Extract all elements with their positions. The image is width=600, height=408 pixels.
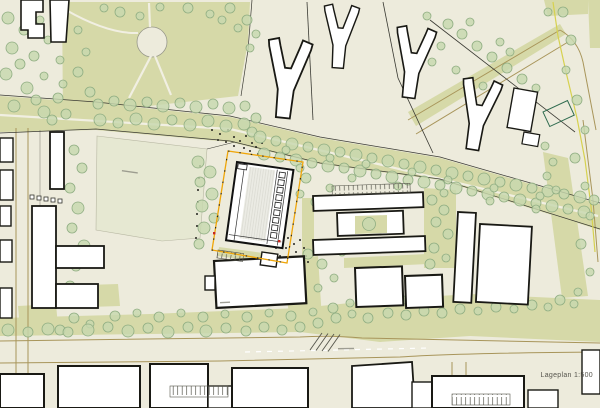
- tree: [65, 183, 75, 193]
- tree: [2, 324, 14, 336]
- main-building: [226, 162, 293, 248]
- bldg-left-d: [0, 240, 12, 262]
- tree: [271, 136, 281, 146]
- tree: [100, 4, 108, 12]
- tree: [348, 310, 356, 318]
- bldg-bottom-f: [528, 390, 558, 408]
- tree: [259, 322, 269, 332]
- entry-block: [238, 164, 248, 170]
- sports-field-layer: [96, 136, 207, 241]
- tree: [242, 15, 252, 25]
- tree: [544, 303, 552, 311]
- sports-field: [96, 136, 207, 241]
- court-bar-south: [313, 236, 425, 255]
- gravel-dot: [211, 129, 213, 131]
- tree: [240, 101, 250, 111]
- gravel-dot: [233, 136, 235, 138]
- tree: [246, 44, 254, 52]
- tree: [486, 197, 494, 205]
- bldg-bottom-c: [232, 368, 308, 408]
- tree: [130, 113, 142, 125]
- tree: [258, 148, 270, 160]
- tree: [167, 115, 177, 125]
- tree: [110, 311, 120, 321]
- gravel-dot: [303, 247, 305, 249]
- tree: [350, 149, 362, 161]
- tree: [313, 318, 323, 328]
- tree: [286, 311, 296, 321]
- tree: [15, 59, 25, 69]
- red-mark: [213, 232, 215, 234]
- tree: [234, 24, 242, 32]
- parking-row-bottom-center: [170, 386, 228, 397]
- tree: [536, 192, 544, 200]
- tree: [77, 163, 87, 173]
- gravel-dot: [249, 150, 251, 152]
- tree: [532, 205, 540, 213]
- tree: [69, 313, 79, 323]
- tree: [190, 101, 202, 113]
- bldg-east-block: [476, 224, 532, 305]
- tree: [63, 327, 73, 337]
- tree: [558, 7, 568, 17]
- tree: [23, 327, 33, 337]
- tree: [69, 145, 79, 155]
- park-circle-plaza: [137, 27, 167, 57]
- room-cell: [279, 172, 286, 178]
- gravel-dot: [195, 237, 197, 239]
- tree: [559, 189, 569, 199]
- tree: [363, 218, 376, 231]
- tree: [576, 239, 586, 249]
- tree: [563, 204, 573, 214]
- tree: [177, 309, 185, 317]
- tree: [499, 192, 509, 202]
- tree: [479, 82, 487, 90]
- tree: [192, 156, 204, 168]
- room-cell: [271, 225, 278, 231]
- tree: [242, 312, 252, 322]
- tree: [566, 35, 576, 45]
- tree: [277, 325, 287, 335]
- tree: [220, 120, 232, 132]
- tree: [467, 186, 477, 196]
- tree: [450, 182, 462, 194]
- tree: [301, 173, 311, 183]
- tree: [418, 176, 430, 188]
- plan-scale-label: Lageplan 1:500: [541, 372, 593, 380]
- tree: [29, 51, 39, 61]
- bldg-left-c: [0, 206, 11, 226]
- tree: [543, 172, 551, 180]
- lageplan-drawing: [0, 0, 600, 408]
- room-cell: [270, 232, 277, 238]
- tree: [53, 93, 63, 103]
- tree: [427, 195, 437, 205]
- tree: [382, 155, 394, 167]
- tree: [517, 74, 527, 84]
- tree: [6, 42, 18, 54]
- tree: [514, 194, 526, 206]
- tree: [143, 323, 153, 333]
- tree: [589, 195, 599, 205]
- tree: [133, 309, 141, 317]
- tree: [328, 303, 338, 313]
- tree: [241, 326, 251, 336]
- tree: [136, 12, 144, 20]
- tree: [443, 19, 453, 29]
- tree: [541, 142, 549, 150]
- tree: [196, 200, 208, 212]
- tree: [442, 254, 450, 262]
- tree: [42, 323, 54, 335]
- room-cell: [273, 210, 280, 216]
- tree: [339, 163, 349, 173]
- tree: [331, 313, 341, 323]
- street-label-mark: [338, 348, 354, 350]
- gravel-dot: [295, 251, 297, 253]
- wall-tooth: [44, 197, 48, 201]
- tree: [490, 184, 498, 192]
- sports-hall-notch: [205, 276, 215, 290]
- tree: [570, 153, 580, 163]
- wall-tooth: [37, 196, 41, 200]
- tree: [113, 118, 123, 128]
- tree: [455, 304, 465, 314]
- tree: [472, 41, 482, 51]
- tree: [401, 310, 411, 320]
- gravel-dot: [251, 142, 253, 144]
- site-plan: Lageplan 1:500: [0, 0, 600, 408]
- tree: [544, 8, 552, 16]
- tree: [527, 183, 537, 193]
- tree: [142, 97, 152, 107]
- room-cell: [277, 187, 284, 193]
- tree: [439, 205, 449, 215]
- tree: [115, 7, 125, 17]
- gravel-dot: [225, 141, 227, 143]
- tree: [437, 42, 445, 50]
- tree: [94, 114, 106, 126]
- tree: [425, 259, 435, 269]
- tree: [307, 158, 317, 168]
- tree: [195, 177, 205, 187]
- tree: [251, 113, 261, 123]
- red-mark: [278, 240, 280, 242]
- bldg-f-arm-1: [56, 246, 104, 268]
- tree: [309, 308, 317, 316]
- bldg-square-a: [355, 266, 403, 307]
- tree: [162, 326, 174, 338]
- tree: [223, 102, 235, 114]
- tree: [200, 325, 212, 337]
- tree: [572, 95, 582, 105]
- tree: [429, 243, 439, 253]
- tree: [330, 274, 338, 282]
- tree: [252, 30, 260, 38]
- gravel-dot: [196, 225, 198, 227]
- tree: [574, 191, 586, 203]
- tree: [371, 169, 381, 179]
- gravel-dot: [245, 135, 247, 137]
- tree: [303, 142, 313, 152]
- tree: [21, 82, 33, 94]
- gravel-dot: [299, 239, 301, 241]
- tree: [225, 3, 235, 13]
- tree: [2, 12, 14, 24]
- tree: [506, 48, 514, 56]
- tree: [221, 310, 229, 318]
- bldg-topright-b: [522, 132, 540, 147]
- bldg-f-arm-2: [56, 284, 98, 308]
- tree: [574, 288, 582, 296]
- tree: [148, 118, 160, 130]
- tree: [295, 322, 305, 332]
- tree: [317, 259, 327, 269]
- tree: [36, 16, 44, 24]
- tree: [218, 16, 226, 24]
- tree: [549, 158, 557, 166]
- tree: [206, 188, 218, 200]
- tree: [59, 80, 67, 88]
- wall-tooth: [58, 199, 62, 203]
- tree: [444, 176, 452, 184]
- right-edge-sliver: [588, 0, 600, 48]
- tree: [265, 309, 273, 317]
- bldg-bottom-d: [352, 362, 415, 408]
- tree: [198, 312, 208, 322]
- tree: [440, 189, 448, 197]
- tree: [183, 3, 193, 13]
- tree: [581, 126, 589, 134]
- gravel-dot: [255, 146, 257, 148]
- tree: [478, 173, 490, 185]
- tree: [586, 268, 594, 276]
- tree: [122, 325, 134, 337]
- tree: [399, 159, 409, 169]
- tree: [67, 223, 77, 233]
- bldg-bottomleft: [0, 374, 44, 408]
- tree: [562, 66, 570, 74]
- tree: [443, 229, 453, 239]
- gravel-dot: [219, 133, 221, 135]
- tree: [314, 284, 322, 292]
- tree: [502, 63, 512, 73]
- gravel-dot: [307, 261, 309, 263]
- tree: [383, 308, 393, 318]
- tree: [466, 18, 474, 26]
- tree: [408, 168, 416, 176]
- tree: [82, 324, 94, 336]
- gravel-dot: [243, 147, 245, 149]
- room-cell: [275, 202, 282, 208]
- tree: [431, 217, 441, 227]
- tree: [586, 212, 594, 220]
- tree: [428, 58, 436, 66]
- tree: [109, 96, 119, 106]
- wall-tooth: [51, 198, 55, 202]
- tree: [157, 100, 169, 112]
- parking-row-bottom-right: [452, 394, 510, 405]
- tree: [363, 313, 373, 323]
- tree: [93, 99, 103, 109]
- tree: [61, 109, 71, 119]
- tree: [346, 299, 354, 307]
- tree: [31, 95, 41, 105]
- tree: [208, 99, 218, 109]
- tree: [362, 160, 370, 168]
- tree: [56, 56, 64, 64]
- tree: [254, 131, 266, 143]
- room-cell: [276, 195, 283, 201]
- gravel-dot: [239, 140, 241, 142]
- tree: [437, 308, 447, 318]
- tree: [348, 174, 356, 182]
- tree: [72, 202, 84, 214]
- tree: [204, 166, 216, 178]
- tree: [463, 171, 473, 181]
- park-plaza: [137, 27, 167, 57]
- gravel-dot: [233, 145, 235, 147]
- tree: [82, 48, 90, 56]
- bldg-f-wing: [32, 206, 56, 308]
- gravel-dot: [293, 243, 295, 245]
- bldg-left-b: [0, 170, 13, 200]
- bldg-bottom-a: [58, 366, 140, 408]
- tree: [154, 312, 164, 322]
- room-cell: [272, 217, 279, 223]
- tree: [85, 87, 95, 97]
- tree: [103, 322, 113, 332]
- tree: [487, 52, 497, 62]
- bldg-square-b: [405, 275, 443, 308]
- tree: [555, 295, 565, 305]
- tree: [510, 179, 522, 191]
- tree: [0, 68, 12, 80]
- tree: [282, 146, 290, 154]
- tree: [510, 305, 518, 313]
- tree: [198, 222, 210, 234]
- gravel-dot: [285, 247, 287, 249]
- tree: [457, 29, 467, 39]
- gravel-dot: [287, 237, 289, 239]
- tree: [202, 115, 214, 127]
- wall-tooth: [30, 195, 34, 199]
- tree: [194, 239, 204, 249]
- tree: [47, 115, 57, 125]
- tree: [8, 100, 20, 112]
- bldg-topleft-b: [50, 0, 69, 42]
- tree: [156, 3, 164, 11]
- tree: [221, 323, 231, 333]
- tree: [386, 171, 398, 183]
- bldg-left-e: [0, 288, 12, 318]
- gravel-dot: [197, 189, 199, 191]
- tree: [73, 67, 83, 77]
- bldg-east-bar: [453, 212, 476, 303]
- tree: [546, 200, 558, 212]
- tree: [570, 300, 578, 308]
- tree: [431, 165, 441, 175]
- tree: [496, 38, 504, 46]
- tree: [206, 10, 214, 18]
- tree: [335, 147, 345, 157]
- tree: [124, 99, 136, 111]
- tree: [452, 66, 460, 74]
- tree: [183, 322, 193, 332]
- tree: [474, 307, 482, 315]
- tree: [175, 98, 185, 108]
- tree: [423, 12, 431, 20]
- tree: [552, 186, 560, 194]
- park-path-n: [149, 3, 150, 27]
- gravel-dot: [217, 139, 219, 141]
- tree: [326, 154, 334, 162]
- tree: [184, 119, 196, 131]
- room-cell: [278, 180, 285, 186]
- bldg-left-a: [0, 138, 13, 162]
- bldg-narrow: [50, 132, 64, 189]
- gravel-dot: [196, 213, 198, 215]
- tree: [435, 180, 445, 190]
- tree: [40, 72, 48, 80]
- tree: [581, 182, 589, 190]
- tree: [74, 26, 82, 34]
- court-bar-north: [313, 192, 423, 211]
